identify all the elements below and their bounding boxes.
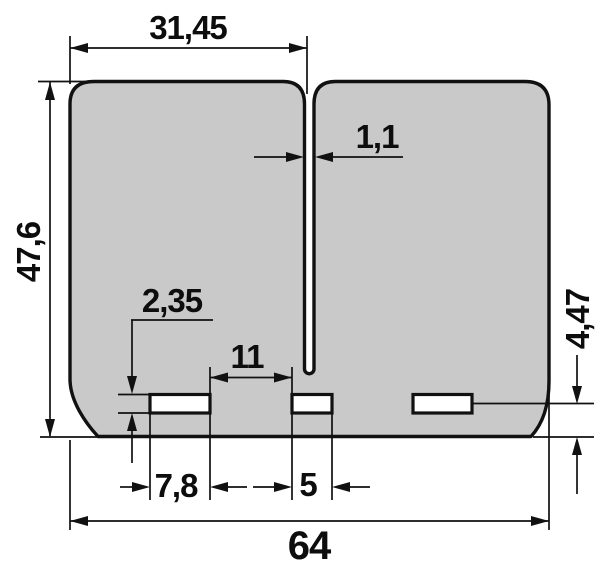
dim-label-top-width: 31,45 bbox=[149, 9, 227, 46]
dim-label-slot-spacing: 11 bbox=[231, 338, 265, 375]
arrowhead-left bbox=[332, 482, 350, 492]
arrowhead-left bbox=[70, 43, 88, 53]
dim-label-total-height: 47,6 bbox=[10, 221, 47, 282]
arrowhead-left bbox=[70, 516, 88, 526]
arrowhead-right bbox=[289, 43, 307, 53]
dim-label-slit-width: 1,1 bbox=[356, 118, 400, 155]
arrowhead-right bbox=[531, 516, 549, 526]
arrowhead-up bbox=[572, 437, 582, 455]
technical-drawing: 31,45 1,1 47,6 2,35 11 bbox=[0, 0, 600, 567]
slot-left bbox=[150, 395, 210, 414]
arrowhead-down bbox=[572, 386, 582, 404]
dim-label-slot-height: 2,35 bbox=[142, 282, 203, 319]
arrowhead-right bbox=[132, 482, 150, 492]
arrowhead-down bbox=[45, 419, 55, 437]
slot-center bbox=[292, 395, 332, 414]
part-outline bbox=[70, 82, 549, 437]
dim-label-total-width: 64 bbox=[288, 524, 332, 567]
dim-label-slot-to-bottom: 4,47 bbox=[559, 289, 596, 349]
arrowhead-right bbox=[274, 482, 292, 492]
dim-label-left-slot-width: 7,8 bbox=[155, 467, 199, 504]
dim-label-center-slot-width: 5 bbox=[299, 466, 317, 503]
arrowhead-left bbox=[210, 482, 228, 492]
slot-right bbox=[413, 395, 472, 414]
technical-drawing-page: 31,45 1,1 47,6 2,35 11 bbox=[0, 0, 600, 567]
arrowhead-up bbox=[45, 82, 55, 100]
